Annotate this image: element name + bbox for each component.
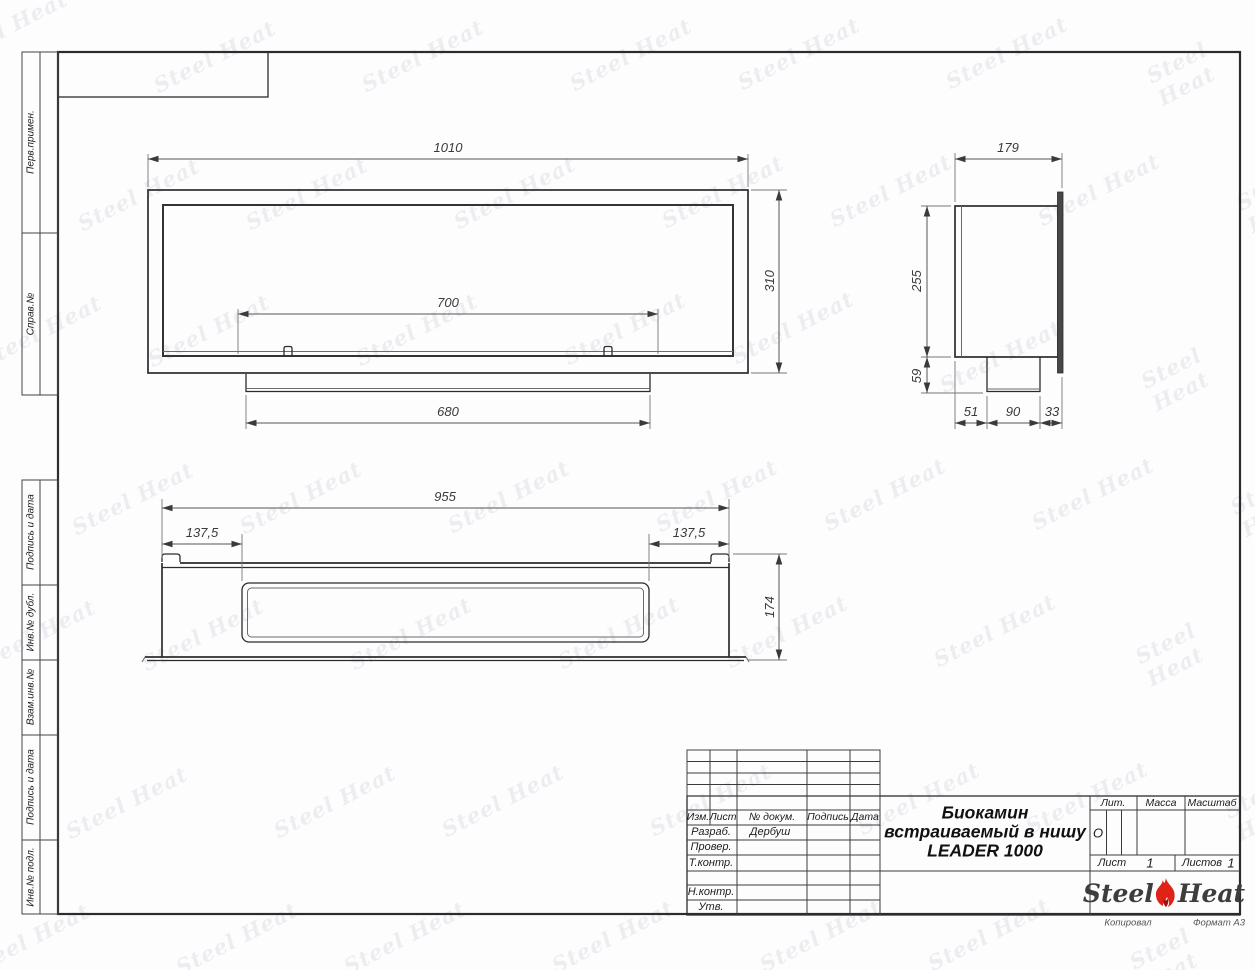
- front-view: 1010 310 700 680: [148, 140, 787, 429]
- tray-side: [987, 357, 1040, 392]
- burner-opening: [242, 583, 649, 642]
- dim-side-b3: 33: [1045, 404, 1060, 419]
- tb-lit-value: О: [1093, 826, 1103, 841]
- tb-col-list: Лист: [709, 811, 736, 823]
- margin-label-sprav: Справ.№: [26, 293, 37, 336]
- bottom-view: 955 137,5 137,5 174: [142, 489, 787, 662]
- corner-stamp-box: [58, 52, 268, 97]
- mount-hook-left: [162, 554, 180, 562]
- dim-bottom-height: 174: [762, 596, 777, 618]
- tb-row-tkontr: Т.контр.: [689, 857, 733, 869]
- dim-front-height: 310: [762, 269, 777, 291]
- tb-row-razrab: Разраб.: [691, 826, 731, 838]
- tb-col-doc: № докум.: [749, 811, 795, 823]
- dim-front-opening: 700: [437, 295, 459, 310]
- kopiroval-label: Копировал: [1104, 918, 1151, 929]
- tb-razrab-name: Дербуш: [750, 826, 791, 838]
- mount-hook-right: [711, 554, 729, 562]
- margin-label-perv: Перв.примен.: [26, 110, 37, 174]
- tb-massa-header: Масса: [1145, 797, 1176, 809]
- logo-heat-text: Heat: [1178, 879, 1245, 908]
- side-view: 179 255 59 51 90 33: [909, 140, 1063, 429]
- dim-side-depth: 179: [997, 140, 1019, 155]
- tb-list-label: Лист: [1098, 857, 1126, 869]
- dim-side-height: 255: [909, 269, 924, 292]
- logo-steel-text: Steel: [1083, 879, 1154, 908]
- tb-row-nkontr: Н.контр.: [688, 886, 735, 898]
- dim-side-b2: 90: [1006, 404, 1021, 419]
- tb-listov-label: Листов: [1182, 857, 1222, 869]
- doc-title-line1: Биокамин: [942, 803, 1029, 824]
- doc-title-line3: LEADER 1000: [927, 841, 1043, 862]
- margin-label-vzamen: Взам.инв.№: [26, 669, 37, 725]
- flame-icon: [1154, 878, 1178, 908]
- dim-bottom-offset-left: 137,5: [186, 525, 219, 540]
- tb-list-value: 1: [1146, 856, 1153, 871]
- front-flange: [1058, 192, 1064, 373]
- margin-label-inv-podl: Инв.№ подл.: [26, 847, 37, 906]
- doc-title-line2: встраиваемый в нишу: [884, 822, 1086, 843]
- tb-masshtab-header: Масштаб: [1187, 797, 1236, 809]
- format-label: Формат А3: [1193, 918, 1245, 929]
- tb-col-izm: Изм.: [687, 811, 709, 823]
- tb-lit-header: Лит.: [1101, 797, 1126, 809]
- tb-listov-value: 1: [1227, 856, 1234, 871]
- tb-col-podpis: Подпись: [807, 811, 849, 823]
- tb-col-data: Дата: [851, 811, 879, 823]
- dim-front-tray: 680: [437, 404, 459, 419]
- dim-side-drop: 59: [909, 369, 924, 383]
- dim-bottom-offset-right: 137,5: [673, 525, 706, 540]
- dim-front-width: 1010: [434, 140, 464, 155]
- drawing-sheet: Steel HeatSteel HeatSteel HeatSteel Heat…: [0, 0, 1255, 970]
- tb-row-utv: Утв.: [699, 901, 724, 913]
- sheet-frame: [22, 52, 1240, 914]
- tb-row-prover: Провер.: [691, 841, 732, 853]
- steelheat-logo: Steel Heat: [1083, 878, 1245, 908]
- margin-label-podpis1: Подпись и дата: [26, 494, 37, 570]
- dim-bottom-width: 955: [434, 489, 456, 504]
- dim-side-b1: 51: [964, 404, 978, 419]
- margin-label-inv-dubl: Инв.№ дубл.: [26, 593, 37, 652]
- margin-label-podpis2: Подпись и дата: [26, 749, 37, 825]
